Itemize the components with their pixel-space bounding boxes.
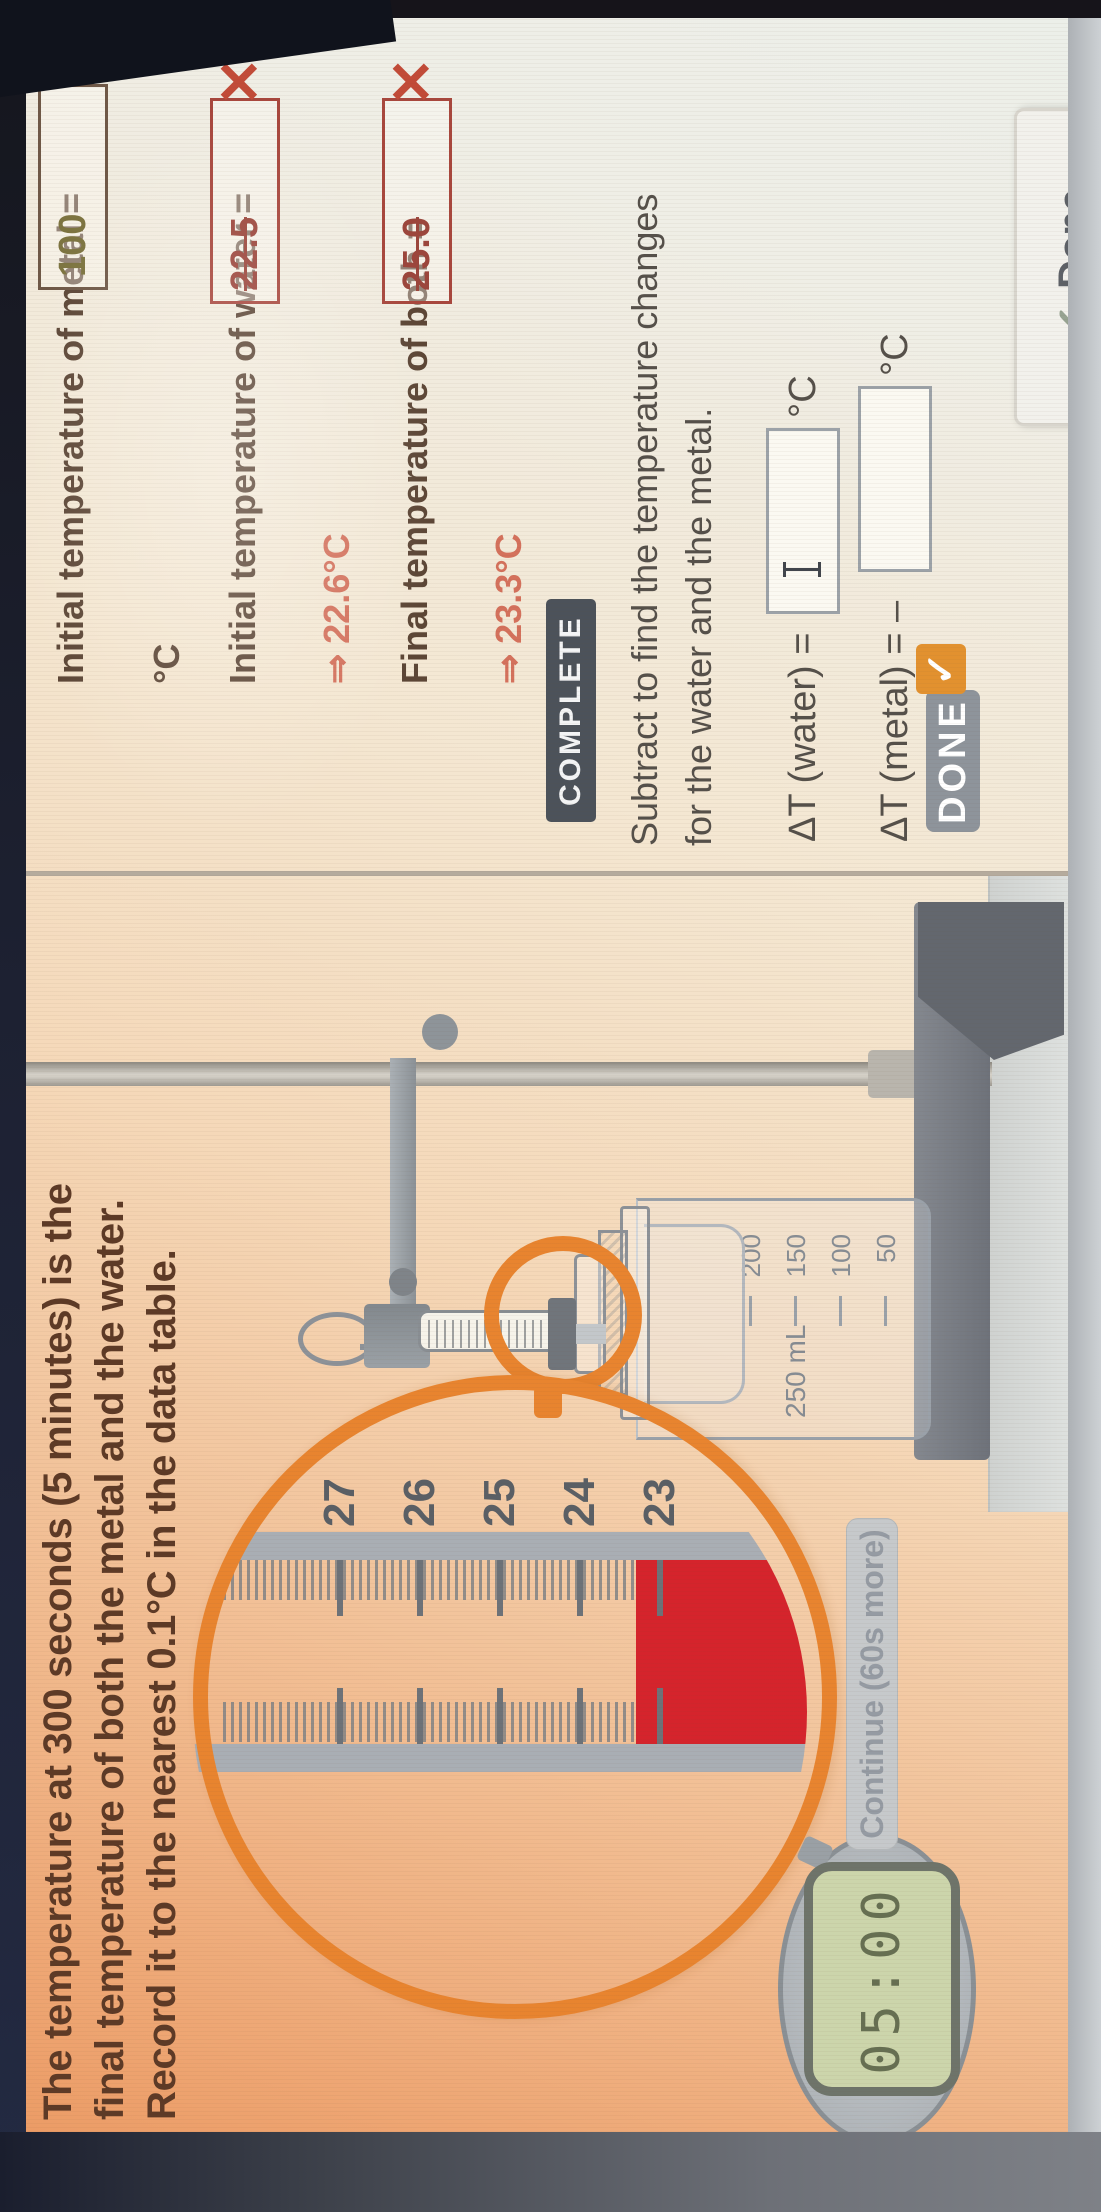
dt-metal-unit: °C — [874, 333, 917, 376]
panel-divider — [26, 871, 1068, 876]
complete-badge: COMPLETE — [546, 599, 596, 822]
calorimeter-cup — [644, 1224, 745, 1404]
water-correct-answer: ⇒ 22.6°C — [316, 533, 358, 684]
instruction-line-1: The temperature at 300 seconds (5 minute… — [36, 1060, 81, 2120]
screen-bottom-edge — [1068, 18, 1101, 2132]
graduation-tick — [794, 1296, 797, 1326]
x-icon: ✕ — [378, 57, 446, 106]
clamp-knob — [422, 1014, 458, 1050]
timer-lcd: 05:00 — [804, 1862, 960, 2096]
dt-water-label: ΔT (water) = — [782, 633, 825, 842]
graduation-tick — [884, 1296, 887, 1326]
done-button[interactable]: DONE — [926, 690, 980, 832]
graduation-label: 100 — [826, 1234, 857, 1292]
dt-metal-input[interactable] — [858, 386, 932, 572]
clamp-screw — [389, 1268, 417, 1296]
subtract-instruction-1: Subtract to find the temperature changes — [624, 194, 666, 846]
graduation-tick — [839, 1296, 842, 1326]
ring-stand-collar — [868, 1050, 920, 1098]
magnifier-lens-ring — [484, 1236, 642, 1394]
beaker-volume-label: 250 mL — [780, 1325, 812, 1418]
continue-button[interactable]: Continue (60s more) — [846, 1518, 898, 1850]
instruction-line-2: final temperature of both the metal and … — [88, 1060, 133, 2120]
graduation-label: 50 — [871, 1234, 902, 1292]
subtract-instruction-2: for the water and the metal. — [678, 408, 720, 846]
bezel-top — [0, 0, 26, 2212]
graduation-tick — [749, 1296, 752, 1326]
rotated-screen-stage: The temperature at 300 seconds (5 minute… — [0, 0, 1101, 2212]
both-correct-answer: ⇒ 23.3°C — [488, 533, 530, 684]
instruction-line-3: Record it to the nearest 0.1°C in the da… — [140, 1060, 185, 2120]
timer-display: 05:00 — [852, 1883, 912, 2075]
water-value-box[interactable]: 22.5 — [210, 98, 280, 304]
bezel-left — [0, 2132, 1101, 2212]
magnifier-circle — [193, 1375, 837, 2019]
dt-water-unit: °C — [782, 375, 825, 418]
text-cursor — [783, 568, 821, 571]
ring-stand-pole — [26, 1062, 992, 1086]
metal-value-box[interactable]: 100 — [38, 84, 108, 290]
graduation-label: 150 — [781, 1234, 812, 1292]
dt-water-input[interactable] — [766, 428, 840, 614]
both-value-box[interactable]: 25.0 — [382, 98, 452, 304]
dt-metal-label: ΔT (metal) = – — [874, 601, 917, 842]
metal-unit: °C — [146, 644, 188, 684]
done-check-icon[interactable]: ✓ — [916, 644, 966, 694]
